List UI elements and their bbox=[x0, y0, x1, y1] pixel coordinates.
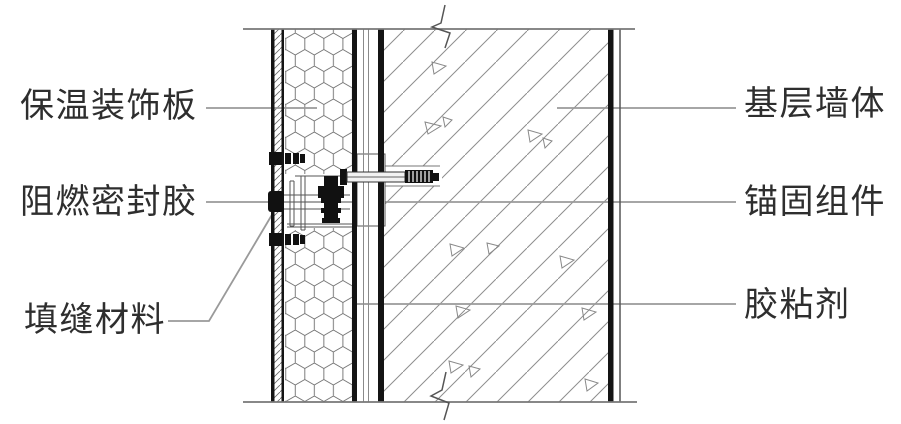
panel-back-sheet-line bbox=[352, 29, 357, 402]
leader-joint-filler bbox=[168, 213, 273, 321]
label-insulation-decorative-board: 保温装饰板 bbox=[20, 88, 198, 125]
anchor-tip bbox=[433, 173, 439, 181]
label-joint-filler-material: 填缝材料 bbox=[24, 302, 166, 339]
label-base-wall: 基层墙体 bbox=[744, 86, 886, 123]
base-wall-hatch bbox=[384, 29, 608, 402]
panel-outer-face-line bbox=[271, 29, 275, 402]
wall-section-diagram: 保温装饰板 阻燃密封胶 填缝材料 基层墙体 锚固组件 胶粘剂 bbox=[0, 0, 901, 424]
label-flame-retardant-sealant: 阻燃密封胶 bbox=[20, 184, 198, 221]
label-adhesive: 胶粘剂 bbox=[744, 287, 851, 324]
label-anchor-assembly: 锚固组件 bbox=[744, 184, 886, 221]
wall-inner-face-line bbox=[608, 29, 614, 402]
panel-face-inner-line bbox=[282, 29, 285, 402]
anchor-washer bbox=[340, 169, 347, 185]
wall-face-line bbox=[378, 29, 384, 402]
sealant-bead bbox=[268, 191, 284, 212]
